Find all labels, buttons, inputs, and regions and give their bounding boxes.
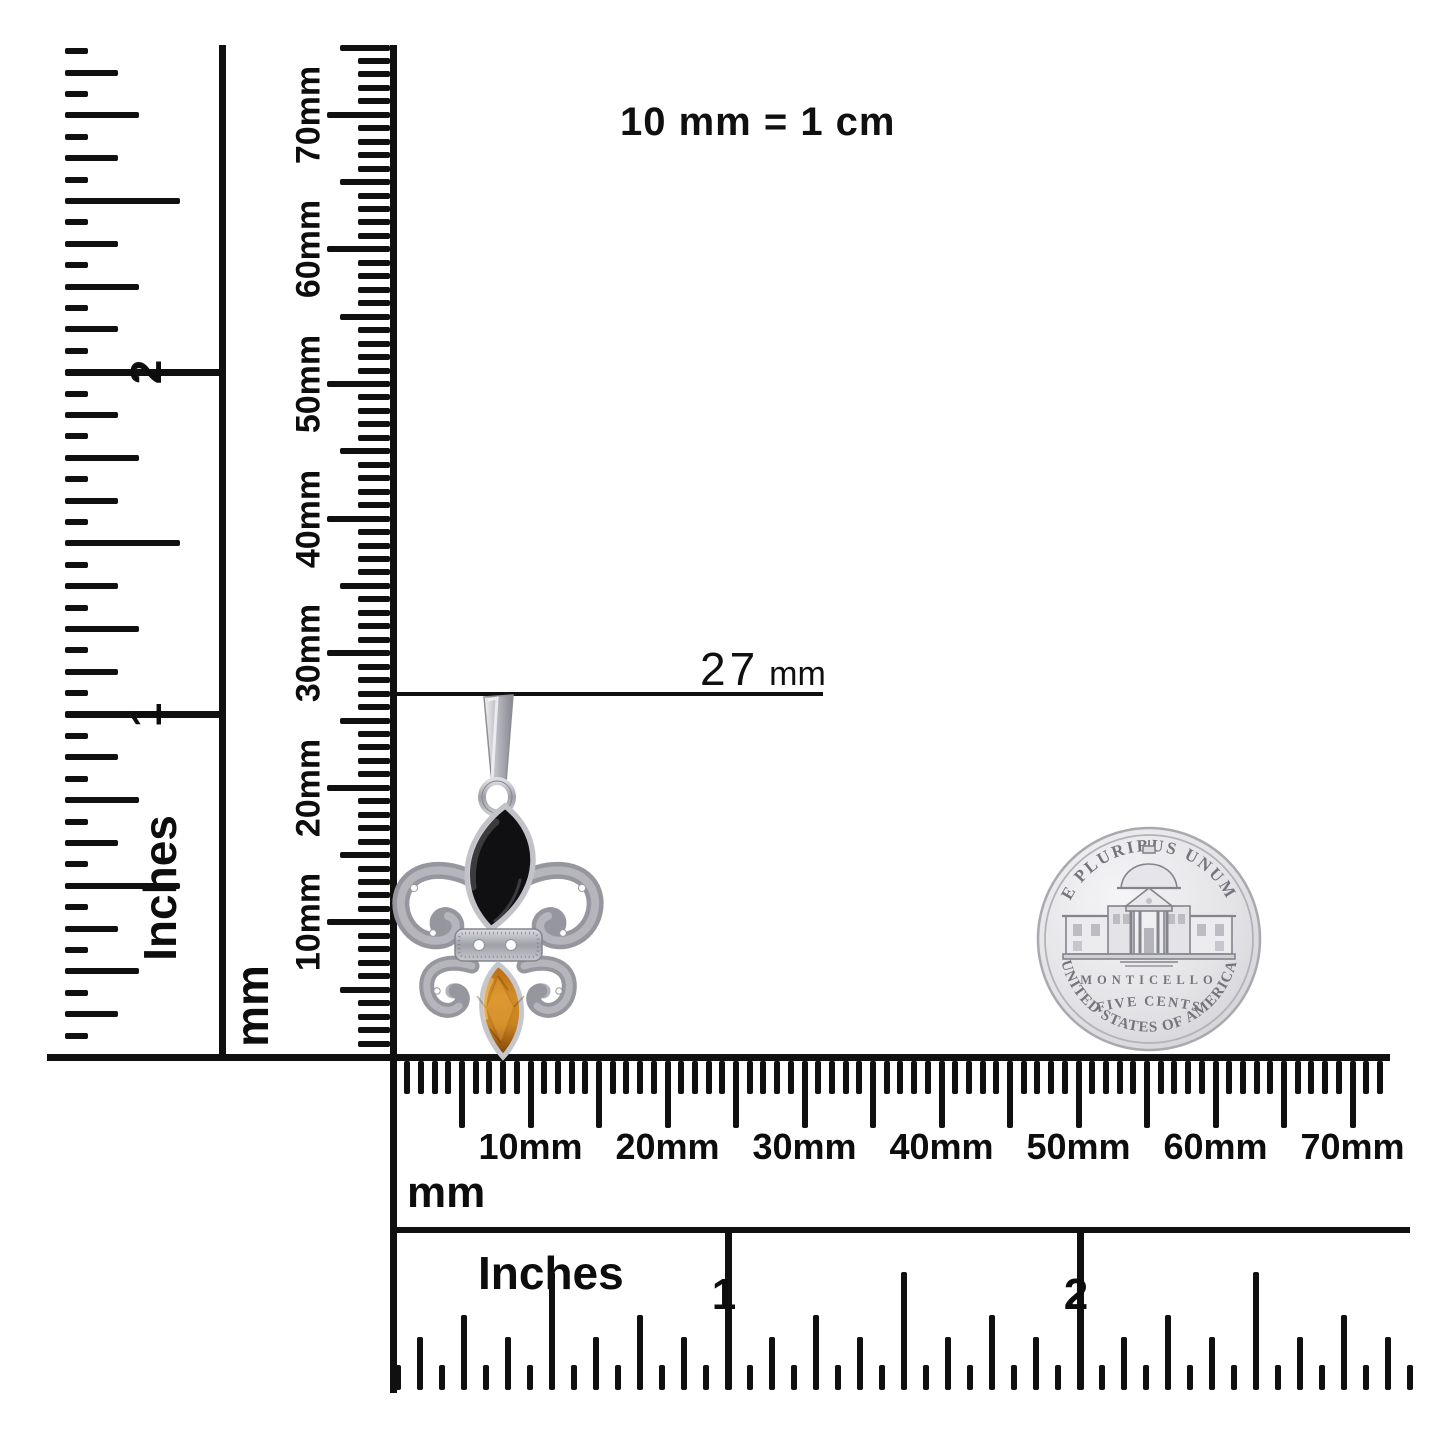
left-inch-ruler-tick [65,733,88,739]
bottom-inch-ruler-tick [439,1365,445,1390]
left-inch-ruler-tick [65,177,88,183]
bottom-mm-ruler-tick [1130,1061,1136,1094]
bottom-mm-ruler-tick [1199,1061,1205,1094]
left-inch-ruler-tick [65,326,118,332]
left-inch-ruler-tick [65,391,88,397]
bottom-inch-ruler-tick [1407,1365,1413,1390]
bottom-mm-ruler-tick [1295,1061,1301,1094]
left-inch-ruler-tick [65,754,118,760]
left-inch-ruler-tick [65,990,88,996]
bottom-inch-ruler-tick [791,1365,797,1390]
left-mm-ruler-tick-label: 50mm [290,335,329,433]
left-inch-ruler-tick [65,605,88,611]
left-inch-ruler-tick [65,690,88,696]
left-mm-ruler-tick [340,179,390,185]
left-mm-ruler-tick-label: 70mm [290,66,329,164]
bottom-mm-ruler-tick [870,1061,876,1128]
left-inch-ruler-tick [65,70,118,76]
bottom-inch-ruler-tick [483,1365,489,1390]
left-inch-ruler-tick [65,155,118,161]
left-inch-ruler-tick [65,926,118,932]
bottom-mm-ruler-tick [1322,1061,1328,1094]
bottom-mm-ruler-tick [1377,1061,1383,1094]
bottom-inch-ruler-tick [637,1315,643,1390]
bottom-mm-ruler-tick [555,1061,561,1094]
bottom-mm-ruler-tick [1363,1061,1369,1094]
left-inch-ruler-tick [65,48,88,54]
bottom-mm-ruler-tick [459,1061,465,1128]
bottom-mm-ruler-tick-label: 20mm [615,1126,719,1168]
bottom-mm-ruler-tick [1254,1061,1260,1094]
bottom-mm-ruler-tick [541,1061,547,1094]
bottom-mm-ruler-tick [623,1061,629,1094]
bottom-mm-ruler-tick [733,1061,739,1128]
left-inch-ruler-tick [65,305,88,311]
bottom-mm-ruler-tick [445,1061,451,1094]
bottom-mm-ruler-tick [993,1061,999,1094]
bottom-mm-ruler-tick [706,1061,712,1094]
left-inch-ruler-tick [65,519,88,525]
left-mm-ruler-tick [358,502,390,508]
bottom-mm-ruler-tick [829,1061,835,1094]
bottom-mm-ruler-tick-label: 50mm [1026,1126,1130,1168]
bottom-mm-ruler-tick-label: 40mm [889,1126,993,1168]
bottom-mm-ruler-tick [582,1061,588,1094]
bottom-mm-ruler-tick [760,1061,766,1094]
left-mm-ruler-tick [358,193,390,199]
left-mm-ruler-tick [358,125,390,131]
bottom-mm-ruler-tick [596,1061,602,1128]
left-mm-ruler-tick [358,623,390,629]
left-mm-ruler-tick [327,516,390,522]
bottom-mm-ruler-tick [1350,1061,1356,1128]
bottom-inch-ruler-tick [1275,1365,1281,1390]
left-inch-ruler-tick [65,284,139,290]
bottom-mm-ruler-tick-label: 70mm [1300,1126,1404,1168]
left-mm-ruler-tick [358,152,390,158]
bottom-mm-ruler-tick [486,1061,492,1094]
left-mm-ruler-tick [358,489,390,495]
left-inch-ruler-tick [65,91,88,97]
bottom-inch-ruler-tick [967,1365,973,1390]
left-mm-ruler-tick [358,85,390,91]
left-mm-ruler-tick [358,71,390,77]
bottom-inch-ruler-tick [989,1315,995,1390]
left-mm-ruler-tick [358,341,390,347]
bottom-mm-ruler-tick [1240,1061,1246,1094]
left-inch-ruler-tick [65,1011,118,1017]
left-mm-ruler-tick [340,314,390,320]
left-mm-ruler-tick [358,354,390,360]
left-inch-ruler-tick [65,112,139,118]
left-inch-ruler-tick [65,412,118,418]
bottom-mm-ruler-tick [610,1061,616,1094]
left-inch-ruler-numeral: 2 [122,360,172,384]
left-inch-ruler-tick [65,669,118,675]
left-mm-ruler-tick [358,139,390,145]
bottom-inch-ruler-tick [593,1337,599,1390]
left-mm-ruler-tick [358,610,390,616]
left-inch-ruler-tick [65,455,139,461]
left-mm-ruler-tick [358,529,390,535]
left-inch-ruler-tick [65,797,139,803]
left-mm-ruler-tick [358,637,390,643]
left-mm-ruler-tick [358,475,390,481]
bottom-mm-ruler-tick [500,1061,506,1094]
bottom-mm-ruler-tick [774,1061,780,1094]
left-mm-ruler-tick [327,785,390,791]
left-inch-ruler-tick [65,883,180,889]
left-mm-ruler-tick [358,368,390,374]
left-mm-ruler-tick [358,408,390,414]
bottom-mm-ruler-tick [1144,1061,1150,1128]
bottom-mm-ruler-tick [678,1061,684,1094]
bottom-mm-ruler-tick [651,1061,657,1094]
bottom-mm-ruler-tick [1034,1061,1040,1094]
bottom-mm-ruler-tick [911,1061,917,1094]
bottom-mm-ruler-tick [418,1061,424,1094]
left-inch-ruler-edge-line [219,45,226,1057]
bottom-inch-ruler-tick [395,1365,401,1390]
dimension-unit: mm [769,655,826,694]
left-inch-ruler-tick [65,776,88,782]
left-inch-ruler-tick [65,947,88,953]
bottom-inch-ruler-top-line [390,1227,1410,1233]
bottom-mm-ruler-tick [952,1061,958,1094]
bottom-mm-ruler-tick [1171,1061,1177,1094]
left-mm-ruler-tick [358,98,390,104]
bottom-mm-ruler-tick [856,1061,862,1094]
left-inch-ruler-tick [65,861,88,867]
pendant-diamond-band [455,929,542,961]
bottom-mm-ruler-tick [1089,1061,1095,1094]
product-measurement-diagram: 10 mm = 1 cm 27 mm Inches mm mm Inches 1… [0,0,1445,1445]
left-mm-ruler-tick [358,543,390,549]
bottom-inch-ruler-tick [1099,1365,1105,1390]
bottom-mm-ruler-tick [569,1061,575,1094]
left-inch-ruler-tick [65,241,118,247]
left-mm-ruler-tick [340,448,390,454]
bottom-inch-ruler-tick [461,1315,467,1390]
left-inch-ruler-tick [65,1033,88,1039]
bottom-inch-ruler-tick [703,1365,709,1390]
left-mm-ruler-tick [340,852,390,858]
left-inch-ruler-tick [65,562,88,568]
bottom-mm-ruler-tick [1021,1061,1027,1094]
left-inch-ruler-tick [65,262,88,268]
left-inch-ruler-tick [65,433,88,439]
bottom-inch-ruler-tick [417,1337,423,1390]
left-mm-ruler-tick [358,300,390,306]
bottom-inch-ruler-tick [1165,1315,1171,1390]
coin-building-label: MONTICELLO [1080,973,1218,987]
bottom-mm-ruler-tick [1308,1061,1314,1094]
bottom-inch-ruler-tick [923,1365,929,1390]
bottom-mm-ruler-tick [1281,1061,1287,1128]
left-mm-ruler-tick [340,987,390,993]
left-mm-ruler-tick [358,556,390,562]
left-mm-ruler-tick [340,718,390,724]
bottom-mm-ruler-tick [514,1061,520,1094]
bottom-mm-ruler-tick [404,1061,410,1094]
left-mm-ruler-tick-label: 30mm [290,604,329,702]
left-mm-ruler-tick [358,462,390,468]
left-inch-ruler-tick [65,626,139,632]
left-inch-ruler-tick [65,498,118,504]
bottom-mm-ruler-tick [1007,1061,1013,1128]
bottom-mm-ruler-tick [925,1061,931,1094]
left-mm-ruler-tick [358,394,390,400]
left-mm-ruler-tick [340,45,390,51]
bottom-inch-ruler-tick [1319,1365,1325,1390]
left-inch-ruler-tick [65,819,88,825]
bottom-inch-ruler-tick [1121,1337,1127,1390]
bottom-inch-ruler-tick [1187,1365,1193,1390]
bottom-mm-ruler-tick [1336,1061,1342,1094]
left-mm-ruler-tick [327,381,390,387]
bottom-mm-ruler-tick-label: 30mm [752,1126,856,1168]
bottom-mm-ruler-tick [665,1061,671,1128]
bottom-mm-ruler-tick [692,1061,698,1094]
bottom-inch-ruler-tick [857,1337,863,1390]
bottom-mm-ruler-tick [1048,1061,1054,1094]
bottom-mm-ruler-tick [1076,1061,1082,1128]
bottom-inch-ruler-tick [615,1365,621,1390]
bottom-mm-ruler-tick [939,1061,945,1128]
bottom-inch-ruler-tick [945,1337,951,1390]
bottom-inch-ruler-tick [1363,1365,1369,1390]
left-inch-ruler-tick [65,904,88,910]
bottom-mm-ruler-tick [884,1061,890,1094]
left-mm-ruler-tick-label: 20mm [290,739,329,837]
left-inch-ruler-tick [65,540,180,546]
bottom-mm-ruler-tick [637,1061,643,1094]
bottom-mm-ruler-tick [980,1061,986,1094]
bottom-mm-ruler-tick [1158,1061,1164,1094]
bottom-mm-ruler-tick [1103,1061,1109,1094]
pendant-onyx-stone [467,806,533,929]
left-inch-ruler-tick [65,476,88,482]
bottom-mm-ruler-tick [432,1061,438,1094]
bottom-inch-ruler-tick [1055,1365,1061,1390]
left-inch-ruler-tick [65,198,180,204]
bottom-inch-ruler-tick [1231,1365,1237,1390]
dimension-annotation: 27 mm [700,642,826,696]
bottom-inch-ruler-tick [1209,1337,1215,1390]
nickel-coin: E PLURIBUS UNUM [1030,820,1270,1060]
bottom-inch-ruler-tick [1297,1337,1303,1390]
left-mm-ruler-tick [340,583,390,589]
left-inch-ruler-tick [65,219,88,225]
dimension-value: 27 [700,642,759,696]
bottom-inch-ruler-tick [659,1365,665,1390]
left-inch-ruler-tick [65,348,88,354]
left-mm-ruler-tick [358,664,390,670]
left-mm-ruler-tick-label: 10mm [290,873,329,971]
left-mm-ruler-tick [358,327,390,333]
bottom-inch-ruler-tick [1385,1337,1391,1390]
left-inch-ruler-tick [65,647,88,653]
left-mm-ruler-tick [358,58,390,64]
left-mm-ruler-tick-label: 60mm [290,200,329,298]
bottom-inch-ruler-tick [1341,1315,1347,1390]
bottom-mm-ruler-tick [528,1061,534,1128]
bottom-mm-ruler-tick [473,1061,479,1094]
bottom-mm-ruler-tick [788,1061,794,1094]
left-mm-ruler-tick [358,596,390,602]
left-mm-ruler-tick [358,219,390,225]
left-mm-ruler-tick [358,435,390,441]
bottom-mm-ruler-tick [1267,1061,1273,1094]
left-mm-ruler-tick-label: 40mm [290,469,329,567]
left-mm-ruler-tick [358,421,390,427]
bottom-mm-ruler-tick [802,1061,808,1128]
bottom-mm-ruler-tick [843,1061,849,1094]
bottom-mm-ruler-tick [719,1061,725,1094]
bottom-inch-ruler-tick [835,1365,841,1390]
left-mm-ruler-tick [358,233,390,239]
left-mm-ruler-tick [358,166,390,172]
left-mm-ruler-tick [327,650,390,656]
bottom-inch-ruler-numeral: 1 [712,1270,736,1320]
left-inch-ruler-tick [65,968,139,974]
bottom-mm-ruler-tick [815,1061,821,1094]
bottom-inch-ruler-tick [813,1315,819,1390]
bottom-mm-ruler-tick [747,1061,753,1094]
bottom-inch-ruler-tick [681,1337,687,1390]
left-mm-ruler-tick [327,919,390,925]
bottom-mm-ruler-tick [1226,1061,1232,1094]
bottom-mm-ruler-tick [897,1061,903,1094]
bottom-mm-ruler-tick-label: 60mm [1163,1126,1267,1168]
bottom-mm-ruler-tick [1213,1061,1219,1128]
left-mm-ruler-tick [327,112,390,118]
scale-note: 10 mm = 1 cm [620,100,896,145]
pendant-citrine-stone [477,964,524,1057]
left-mm-ruler-tick [358,260,390,266]
bottom-inch-ruler-tick [527,1365,533,1390]
bottom-inch-ruler-tick [1033,1337,1039,1390]
bottom-mm-ruler-tick [966,1061,972,1094]
left-mm-ruler-tick [327,246,390,252]
pendant-bail [482,695,513,813]
bottom-inch-ruler-tick [1143,1365,1149,1390]
bottom-mm-ruler-unit-label: mm [407,1168,485,1218]
bottom-inch-ruler-tick [879,1365,885,1390]
bottom-inch-ruler-tick [571,1365,577,1390]
bottom-inch-ruler-numeral: 2 [1064,1270,1088,1320]
left-inch-ruler-numeral: 1 [122,702,172,726]
left-mm-ruler-unit-label: mm [225,965,279,1047]
bottom-inch-ruler-tick [1253,1272,1259,1390]
bottom-mm-ruler-tick [1062,1061,1068,1094]
bottom-inch-ruler-tick [901,1272,907,1390]
bottom-inch-ruler-tick [505,1337,511,1390]
left-mm-ruler-tick [358,206,390,212]
pendant-image [385,670,625,1065]
bottom-mm-ruler-tick [1185,1061,1191,1094]
bottom-inch-ruler-tick [1011,1365,1017,1390]
left-inch-ruler-tick [65,583,118,589]
bottom-mm-ruler-tick-label: 10mm [478,1126,582,1168]
bottom-inch-ruler-tick [549,1272,555,1390]
left-mm-ruler-tick [358,569,390,575]
left-inch-ruler-tick [65,134,88,140]
bottom-inch-ruler-tick [747,1365,753,1390]
bottom-mm-ruler-tick [1117,1061,1123,1094]
bottom-inch-ruler-tick [769,1337,775,1390]
left-mm-ruler-tick [358,273,390,279]
left-inch-ruler-tick [65,840,118,846]
left-mm-ruler-tick [358,287,390,293]
